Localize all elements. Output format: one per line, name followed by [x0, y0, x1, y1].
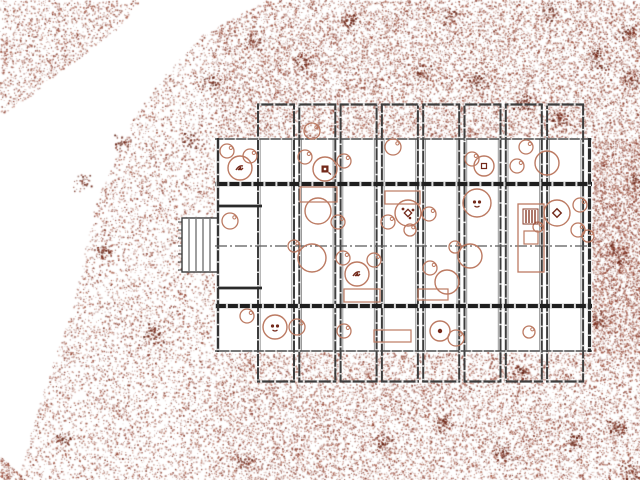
building-body [215, 138, 592, 352]
stair-deck [178, 218, 218, 272]
chair [304, 123, 320, 139]
floor-plan-svg [0, 0, 640, 480]
site-plan [0, 0, 640, 480]
